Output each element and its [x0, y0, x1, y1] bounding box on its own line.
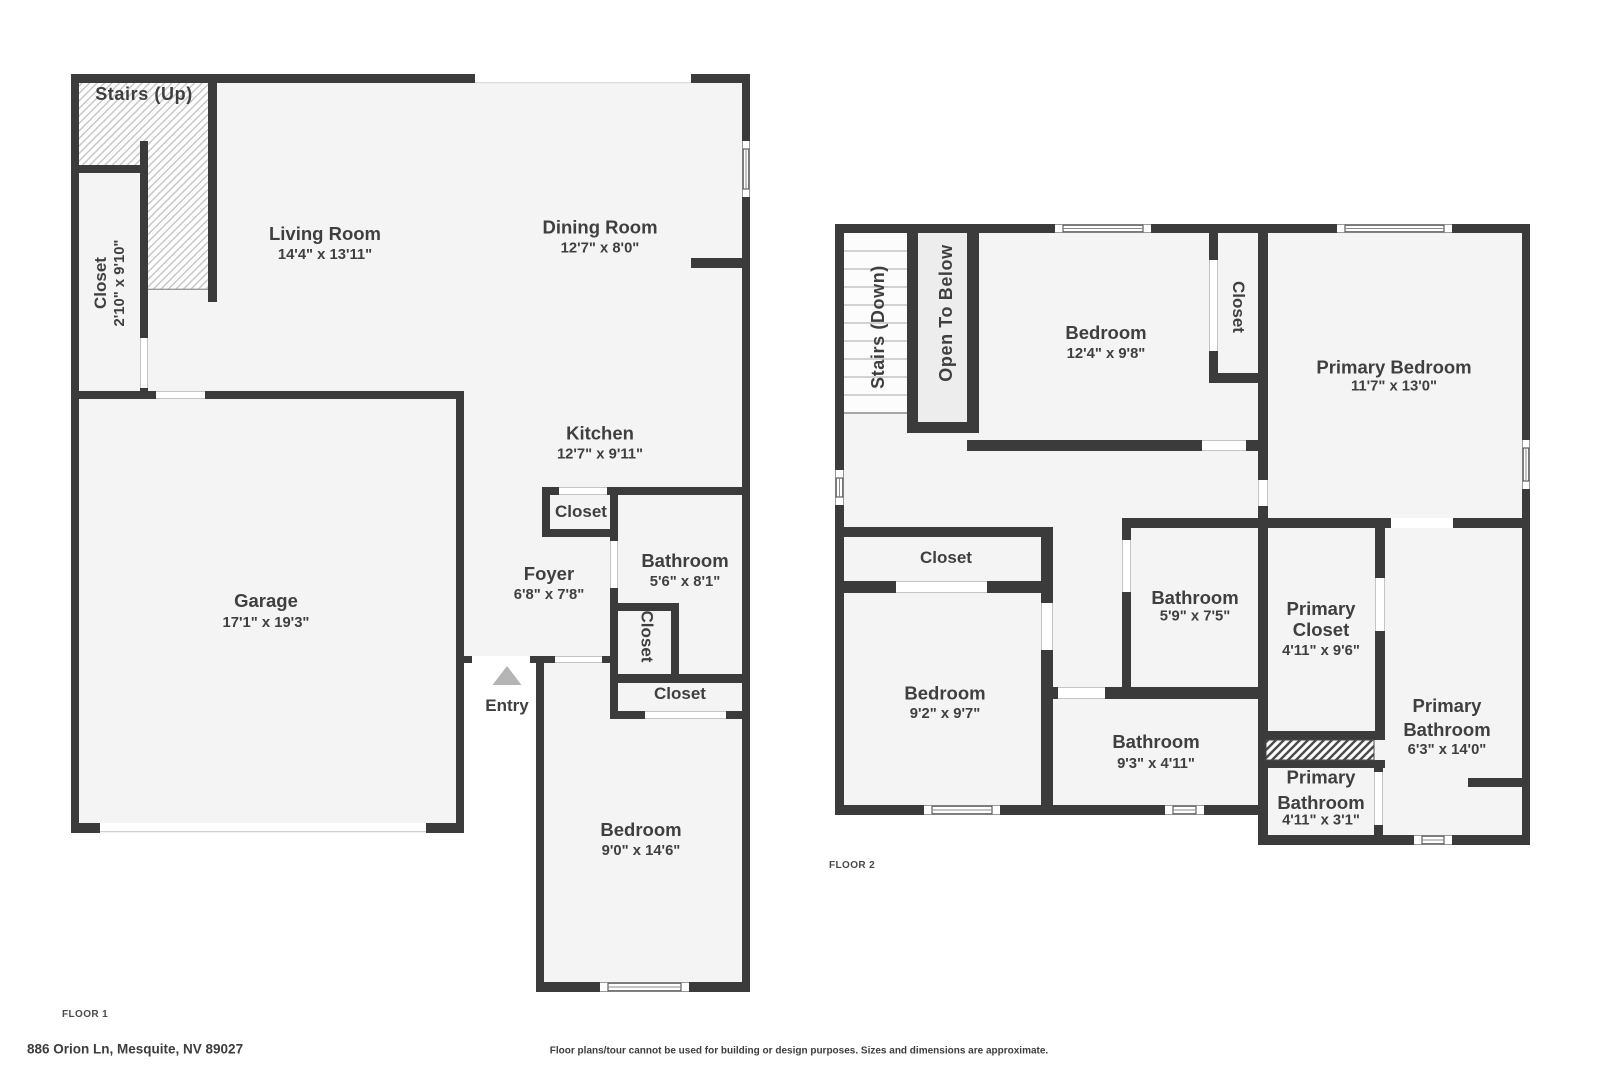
svg-text:11'7" x 13'0": 11'7" x 13'0"	[1351, 379, 1437, 395]
svg-text:Bathroom: Bathroom	[1151, 587, 1238, 608]
svg-text:12'4" x 9'8": 12'4" x 9'8"	[1067, 346, 1146, 362]
svg-text:Garage: Garage	[234, 590, 298, 611]
svg-text:Closet: Closet	[555, 502, 607, 521]
svg-text:12'7" x 9'11": 12'7" x 9'11"	[557, 447, 643, 463]
svg-text:Kitchen: Kitchen	[566, 423, 634, 444]
svg-text:Bathroom: Bathroom	[1277, 792, 1364, 813]
svg-text:Open To Below: Open To Below	[936, 244, 956, 382]
svg-text:Primary Bedroom: Primary Bedroom	[1316, 357, 1471, 378]
svg-text:886 Orion Ln, Mesquite, NV 890: 886 Orion Ln, Mesquite, NV 89027	[27, 1042, 243, 1057]
svg-text:Primary: Primary	[1287, 767, 1357, 788]
svg-text:5'9" x 7'5": 5'9" x 7'5"	[1160, 609, 1230, 625]
svg-text:Closet: Closet	[1229, 281, 1248, 333]
svg-text:6'8" x 7'8": 6'8" x 7'8"	[514, 587, 584, 603]
svg-text:Floor plans/tour cannot be use: Floor plans/tour cannot be used for buil…	[550, 1046, 1049, 1057]
svg-text:Dining Room: Dining Room	[542, 217, 657, 238]
svg-text:Bedroom: Bedroom	[904, 683, 985, 704]
svg-text:14'4" x 13'11": 14'4" x 13'11"	[278, 247, 372, 263]
svg-text:Stairs (Down): Stairs (Down)	[868, 265, 888, 389]
svg-text:FLOOR 1: FLOOR 1	[62, 1009, 108, 1020]
svg-text:Closet: Closet	[1293, 619, 1350, 640]
svg-text:17'1" x 19'3": 17'1" x 19'3"	[223, 615, 310, 631]
svg-text:Primary: Primary	[1287, 598, 1357, 619]
svg-text:9'2" x 9'7": 9'2" x 9'7"	[910, 706, 980, 722]
svg-text:6'3" x 14'0": 6'3" x 14'0"	[1408, 742, 1487, 758]
svg-text:4'11" x 9'6": 4'11" x 9'6"	[1282, 643, 1360, 659]
svg-text:FLOOR 2: FLOOR 2	[829, 860, 875, 871]
svg-text:9'3" x 4'11": 9'3" x 4'11"	[1117, 756, 1195, 772]
svg-text:Bedroom: Bedroom	[600, 819, 681, 840]
svg-text:Bathroom: Bathroom	[1403, 719, 1490, 740]
svg-text:9'0" x 14'6": 9'0" x 14'6"	[602, 843, 681, 859]
svg-text:4'11" x 3'1": 4'11" x 3'1"	[1282, 813, 1360, 829]
svg-text:Closet: Closet	[91, 257, 110, 309]
svg-text:Closet: Closet	[654, 684, 706, 703]
svg-text:Closet: Closet	[638, 611, 657, 663]
svg-text:Bathroom: Bathroom	[1112, 731, 1199, 752]
svg-text:Primary: Primary	[1413, 695, 1483, 716]
svg-text:12'7" x 8'0": 12'7" x 8'0"	[561, 241, 640, 257]
svg-text:Living Room: Living Room	[269, 223, 381, 244]
svg-text:Bedroom: Bedroom	[1065, 322, 1146, 343]
svg-text:2'10" x 9'10": 2'10" x 9'10"	[112, 240, 128, 327]
svg-text:Foyer: Foyer	[524, 563, 574, 584]
svg-text:Entry: Entry	[485, 696, 529, 715]
svg-text:Stairs (Up): Stairs (Up)	[95, 84, 193, 104]
svg-text:Closet: Closet	[920, 548, 972, 567]
svg-text:5'6" x 8'1": 5'6" x 8'1"	[650, 574, 720, 590]
svg-text:Bathroom: Bathroom	[641, 550, 728, 571]
